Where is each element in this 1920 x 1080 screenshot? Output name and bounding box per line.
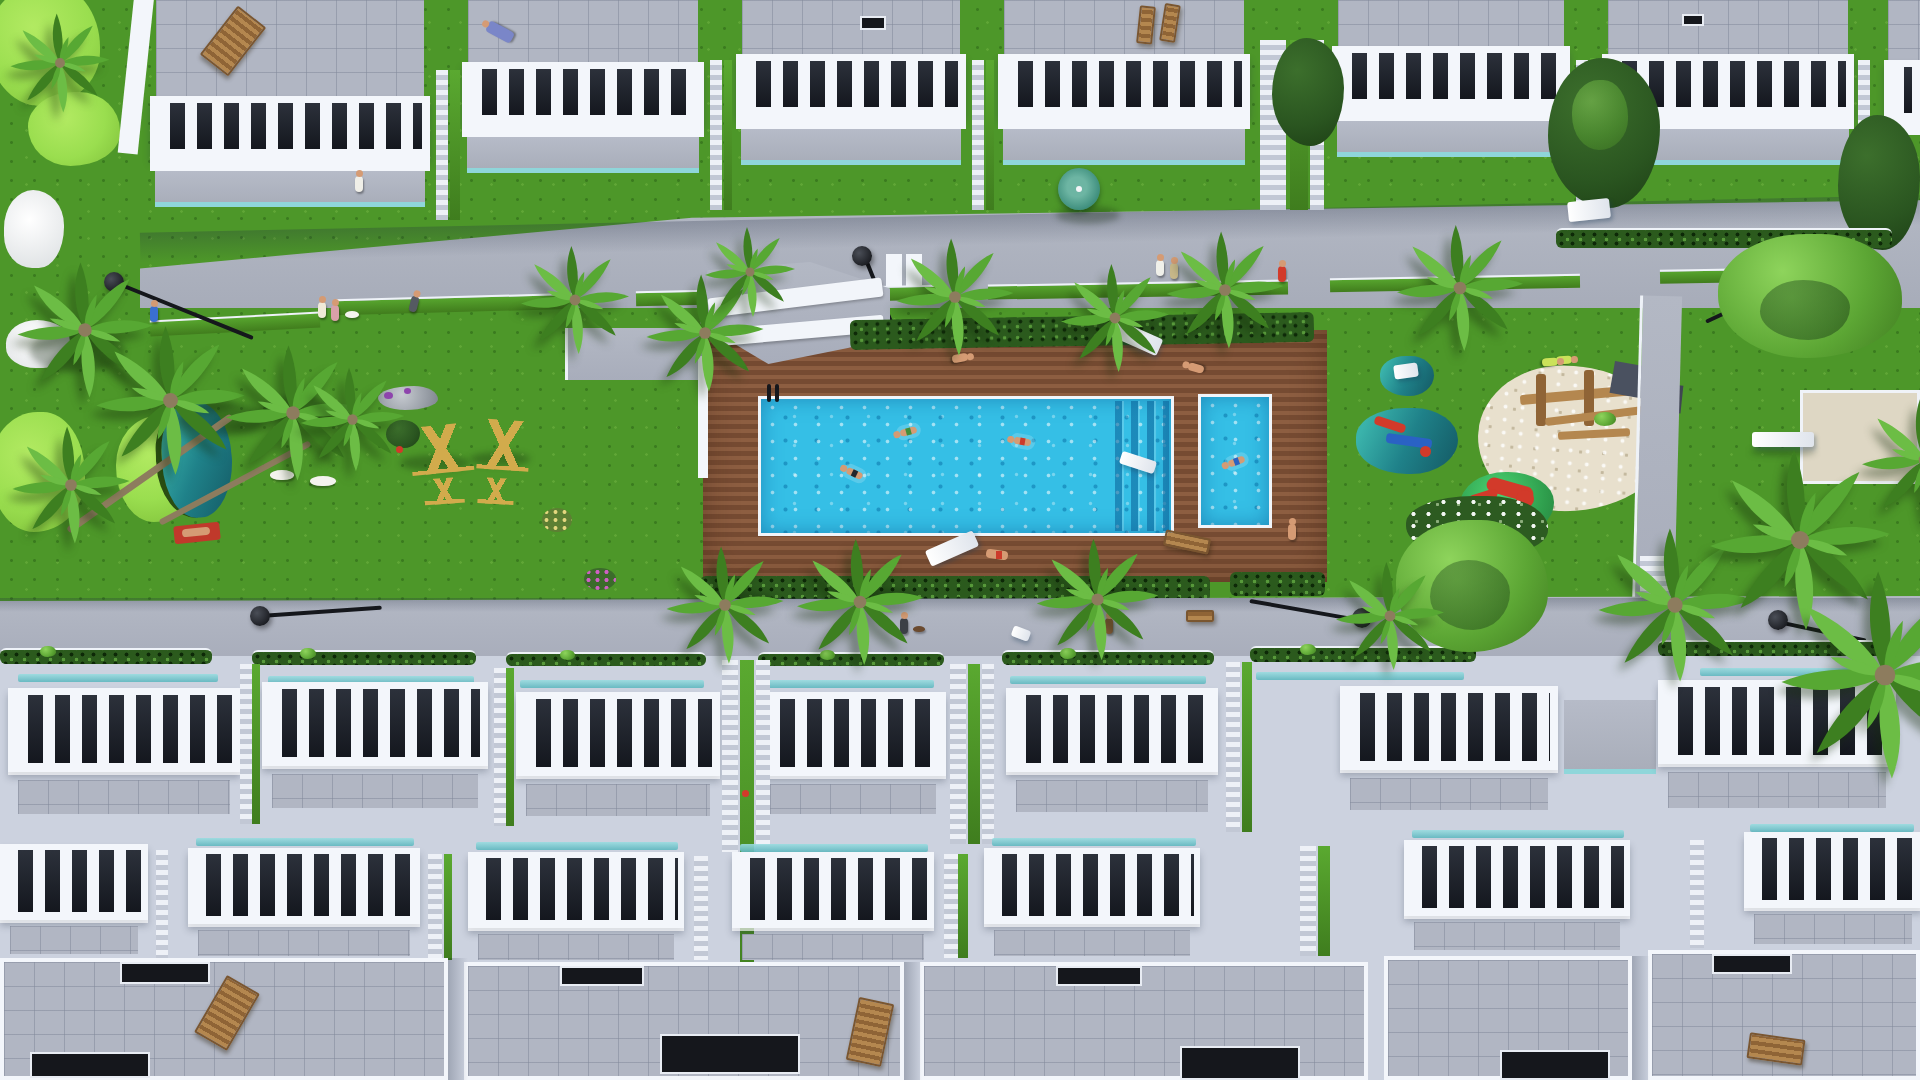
pool-ladder — [775, 384, 779, 402]
agave — [300, 648, 316, 659]
stairway — [694, 856, 708, 960]
dog — [345, 311, 359, 318]
balustrade — [0, 844, 148, 920]
stairway — [982, 664, 994, 844]
roof-hatch — [860, 16, 886, 30]
recessed-terrace — [1564, 700, 1656, 774]
glass-balustrade — [1750, 824, 1914, 832]
planting-strip — [968, 664, 980, 844]
planting-strip — [252, 664, 260, 824]
glass-balustrade — [196, 838, 414, 846]
roof-void — [1056, 966, 1142, 986]
rooftop — [920, 962, 1368, 1080]
yellow-flower-bush — [542, 508, 572, 532]
planting-strip — [986, 60, 994, 210]
roof-terrace — [1608, 0, 1848, 54]
roof-terrace — [1004, 0, 1244, 54]
stairway — [1226, 662, 1240, 832]
aerial-render — [0, 0, 1920, 1080]
palm-tree — [1030, 532, 1165, 667]
terrace-unit — [1404, 840, 1630, 952]
balustrade — [8, 688, 240, 772]
skylight — [660, 1034, 800, 1074]
roof-terrace — [742, 0, 960, 54]
palm-tree — [660, 540, 790, 670]
balustrade — [736, 54, 966, 116]
apartment-block — [998, 0, 1250, 165]
pedestrian — [318, 302, 326, 318]
central-stairway — [722, 660, 738, 852]
glass-terrace — [467, 137, 699, 173]
unit-roof — [742, 934, 924, 960]
terrace-unit — [1340, 686, 1558, 814]
terrace-unit — [188, 848, 420, 958]
dark-tree — [1572, 80, 1628, 150]
climbing-frame-post — [1536, 374, 1546, 426]
unit-roof — [1016, 780, 1208, 812]
stairway — [1690, 840, 1704, 948]
parapet — [462, 124, 704, 137]
glass-balustrade — [1412, 830, 1624, 838]
roof-void — [560, 966, 644, 986]
stairway — [494, 668, 506, 826]
roof-shadow — [1632, 956, 1650, 1080]
balustrade — [262, 682, 488, 766]
exercise-frame — [477, 477, 514, 505]
terrace-unit — [760, 692, 946, 818]
apartment-block — [1332, 0, 1570, 157]
palm-tree — [295, 362, 410, 477]
planting-strip — [724, 60, 732, 210]
planting-strip — [444, 854, 452, 960]
glass-terrace — [1003, 129, 1245, 165]
stairway — [972, 60, 984, 210]
glass-terrace — [1337, 121, 1565, 157]
roof-terrace — [1888, 0, 1920, 60]
pedestrian — [331, 305, 339, 321]
balustrade — [984, 848, 1200, 924]
terrace-unit — [1006, 688, 1218, 816]
agave — [40, 646, 56, 657]
glass-terrace — [155, 171, 425, 207]
terrace-unit — [516, 692, 720, 820]
umbrella-shadow — [1056, 206, 1120, 224]
unit-roof — [1754, 914, 1912, 944]
stairway — [950, 664, 966, 844]
pink-flower-bush — [584, 568, 616, 590]
terrace-unit — [8, 688, 240, 818]
terrace-unit — [0, 844, 148, 956]
parapet — [736, 116, 966, 129]
palm-tree — [1330, 556, 1450, 676]
unit-roof — [526, 784, 710, 816]
exercise-frame — [476, 418, 531, 472]
planting-strip — [958, 854, 968, 958]
terrace-unit — [984, 848, 1200, 958]
roof-shadow — [904, 962, 922, 1080]
pedestrian — [355, 176, 363, 192]
sand-shrub — [1594, 412, 1616, 426]
balustrade — [150, 96, 430, 158]
balustrade — [1340, 686, 1558, 770]
balustrade — [516, 692, 720, 776]
balustrade — [188, 848, 420, 924]
parapet — [998, 116, 1250, 129]
palm-tree — [890, 232, 1020, 362]
glass-balustrade — [740, 844, 928, 852]
palm-tree — [790, 532, 930, 672]
balustrade — [1884, 60, 1920, 122]
planting-strip — [450, 70, 460, 220]
glass-balustrade — [18, 674, 218, 682]
stairway — [436, 70, 448, 220]
exercise-frame — [408, 422, 475, 476]
terrace-unit — [262, 682, 488, 812]
unit-roof — [18, 780, 230, 814]
unit-roof — [10, 926, 138, 954]
palm-tree — [1160, 225, 1290, 355]
stairway — [944, 854, 958, 958]
unit-roof — [272, 774, 478, 808]
terrace-unit — [732, 852, 934, 962]
agave-planter — [0, 648, 212, 664]
palm-tree — [700, 222, 800, 322]
pedestrian — [1288, 524, 1296, 540]
stair-flowers — [742, 790, 749, 797]
grass-hedge — [1230, 572, 1325, 596]
balustrade — [760, 692, 946, 776]
street-lamp — [250, 606, 270, 626]
glass-balustrade — [520, 680, 704, 688]
stairway — [428, 854, 442, 960]
stairway — [156, 850, 168, 958]
patio-umbrella — [1058, 168, 1100, 210]
palm-tree — [1855, 390, 1920, 530]
walkway-bench — [1186, 610, 1214, 622]
balustrade — [732, 852, 934, 928]
apartment-block — [736, 0, 966, 165]
unit-roof — [994, 930, 1190, 956]
agave-planter — [252, 650, 476, 665]
planting-strip — [1318, 846, 1330, 956]
main-pool — [758, 396, 1174, 536]
glass-balustrade — [476, 842, 678, 850]
skylight — [1180, 1046, 1300, 1080]
stairway — [710, 60, 722, 210]
terrace-unit — [1744, 832, 1920, 948]
glass-balustrade — [1010, 676, 1206, 684]
planting-strip — [1242, 662, 1252, 832]
balustrade — [1006, 688, 1218, 772]
unit-roof — [1350, 778, 1548, 810]
palm-tree — [1055, 258, 1175, 378]
central-stairway — [756, 660, 770, 852]
palm-tree — [5, 8, 115, 118]
agave — [560, 650, 575, 660]
apartment-block — [462, 0, 704, 173]
palm-tree — [6, 420, 136, 550]
dark-tree — [1272, 38, 1344, 146]
balustrade — [998, 54, 1250, 116]
palm-tree — [1770, 560, 1920, 790]
skylight — [1500, 1050, 1610, 1080]
terrace-unit — [468, 852, 684, 962]
roof-shadow — [448, 958, 468, 1080]
balustrade — [1404, 840, 1630, 916]
leafy-tree — [1760, 280, 1850, 340]
planting-strip — [506, 668, 514, 826]
roof-terrace — [156, 0, 424, 96]
glass-terrace — [741, 129, 961, 165]
parapet — [150, 158, 430, 171]
roof-void — [1712, 954, 1792, 974]
roof-terrace — [1338, 0, 1564, 46]
spring-rider — [1420, 446, 1431, 457]
roof-void — [120, 962, 210, 984]
balustrade — [1332, 46, 1570, 108]
agave — [1300, 644, 1316, 655]
parapet — [1332, 108, 1570, 121]
unit-roof — [198, 930, 410, 956]
apartment-block — [150, 0, 430, 207]
balustrade — [1744, 832, 1920, 908]
palm-tree — [515, 240, 635, 360]
unit-roof — [478, 934, 674, 960]
stairway — [1300, 846, 1316, 956]
stairway — [240, 664, 252, 824]
palm-tree — [1390, 218, 1530, 358]
balustrade — [462, 62, 704, 124]
sunbather-shorts — [996, 551, 1002, 559]
roof-hatch — [1682, 14, 1704, 26]
balustrade — [468, 852, 684, 928]
unit-roof — [770, 784, 936, 814]
exercise-frame — [423, 477, 465, 506]
unit-roof — [1414, 922, 1620, 950]
glass-balustrade — [764, 680, 934, 688]
skylight — [30, 1052, 150, 1078]
glass-balustrade — [992, 838, 1196, 846]
